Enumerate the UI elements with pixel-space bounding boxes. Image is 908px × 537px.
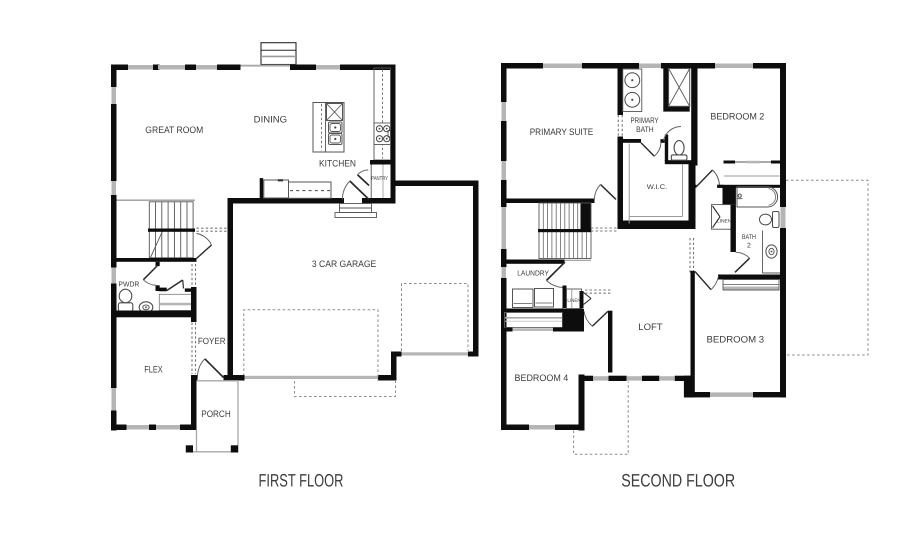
- svg-text:KITCHEN: KITCHEN: [319, 157, 356, 168]
- svg-text:SECOND FLOOR: SECOND FLOOR: [621, 470, 735, 490]
- svg-text:PRIMARY SUITE: PRIMARY SUITE: [530, 126, 594, 137]
- svg-text:LINEN: LINEN: [567, 298, 581, 304]
- svg-text:PWDR: PWDR: [118, 280, 139, 289]
- svg-text:PRIMARY: PRIMARY: [631, 116, 660, 125]
- svg-text:PANTRY: PANTRY: [371, 176, 388, 182]
- svg-text:BEDROOM 2: BEDROOM 2: [710, 110, 764, 121]
- svg-text:FOYER: FOYER: [198, 336, 226, 346]
- svg-text:BATH: BATH: [636, 125, 654, 134]
- svg-text:FLEX: FLEX: [144, 364, 163, 375]
- svg-text:DINING: DINING: [254, 114, 287, 125]
- svg-text:3 CAR GARAGE: 3 CAR GARAGE: [312, 258, 376, 269]
- svg-text:GREAT ROOM: GREAT ROOM: [145, 124, 203, 135]
- svg-text:LAUNDRY: LAUNDRY: [517, 268, 549, 277]
- svg-text:BEDROOM 4: BEDROOM 4: [515, 372, 569, 383]
- svg-text:LINEN: LINEN: [717, 218, 732, 224]
- svg-text:LOFT: LOFT: [638, 321, 663, 332]
- svg-text:W.I.C.: W.I.C.: [647, 184, 668, 191]
- svg-text:PORCH: PORCH: [201, 408, 230, 419]
- svg-text:FIRST FLOOR: FIRST FLOOR: [259, 470, 344, 490]
- svg-text:2: 2: [747, 242, 751, 249]
- svg-text:BATH: BATH: [742, 234, 756, 241]
- svg-text:BEDROOM 3: BEDROOM 3: [707, 334, 765, 345]
